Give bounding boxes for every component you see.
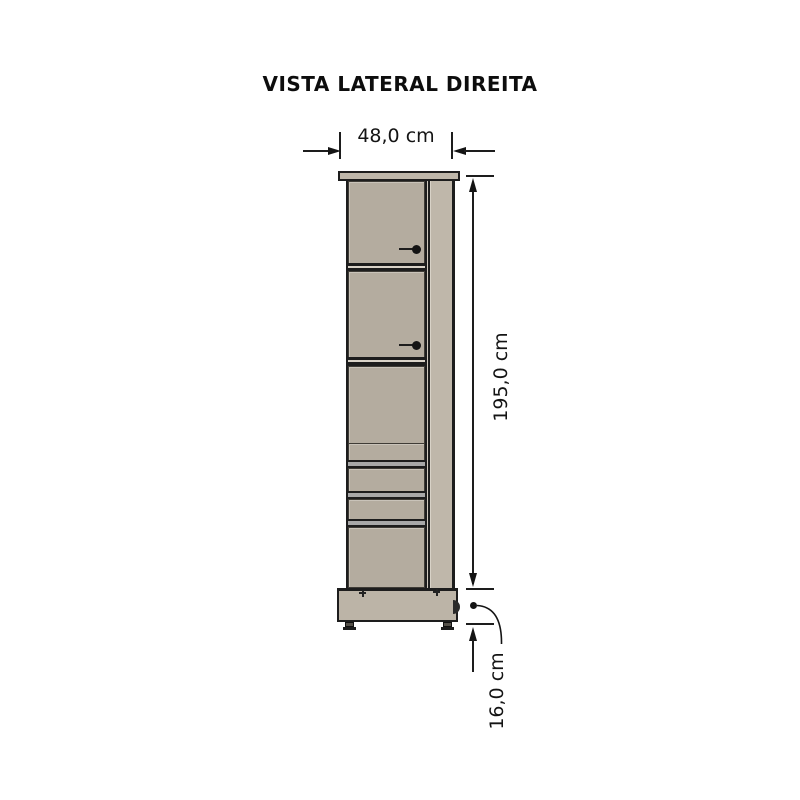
adjustable-foot-right-pad — [441, 627, 454, 630]
screw-icon — [362, 590, 364, 597]
bottom-panel — [348, 527, 425, 588]
cabinet-top-panel — [338, 171, 460, 181]
width-dimension-label: 48,0 cm — [340, 125, 452, 147]
drawer-front-2 — [348, 468, 425, 492]
knob-icon — [412, 341, 421, 350]
width-arrowhead-left-icon — [328, 147, 341, 155]
door-panel-3 — [348, 366, 425, 444]
cabinet-right-edge — [452, 181, 455, 588]
height-arrowhead-up-icon — [469, 178, 477, 192]
drawer-front-3 — [348, 499, 425, 520]
height-tick-top — [466, 175, 494, 177]
knob-icon — [412, 245, 421, 254]
cabinet-body — [346, 181, 455, 588]
door-gap-1 — [348, 263, 425, 271]
base-arrow-shaft — [472, 640, 474, 672]
screw-icon — [436, 589, 438, 596]
height-dimension-label: 195,0 cm — [490, 327, 512, 427]
width-arrow-shaft-right — [464, 150, 495, 152]
side-strip-panel — [430, 181, 452, 588]
drawer-gap-2 — [348, 491, 425, 499]
base-tick — [466, 623, 494, 625]
door-gap-2 — [348, 357, 425, 366]
drawer-front-1 — [348, 443, 425, 461]
technical-drawing-page: VISTA LATERAL DIREITA 48,0 cm — [0, 0, 800, 800]
base-arrowhead-up-icon — [469, 627, 477, 641]
height-arrowhead-down-icon — [469, 573, 477, 587]
drawer-gap-1 — [348, 460, 425, 468]
width-extension-line-left — [339, 132, 341, 159]
base-dimension-label: 16,0 cm — [486, 646, 508, 736]
height-dimension-line — [472, 182, 474, 584]
cabinet-base — [337, 588, 458, 622]
base-fitting-icon — [453, 600, 460, 614]
height-tick-bottom — [466, 588, 494, 590]
view-title: VISTA LATERAL DIREITA — [0, 72, 800, 96]
width-extension-line-right — [451, 132, 453, 159]
adjustable-foot-left-pad — [343, 627, 356, 630]
